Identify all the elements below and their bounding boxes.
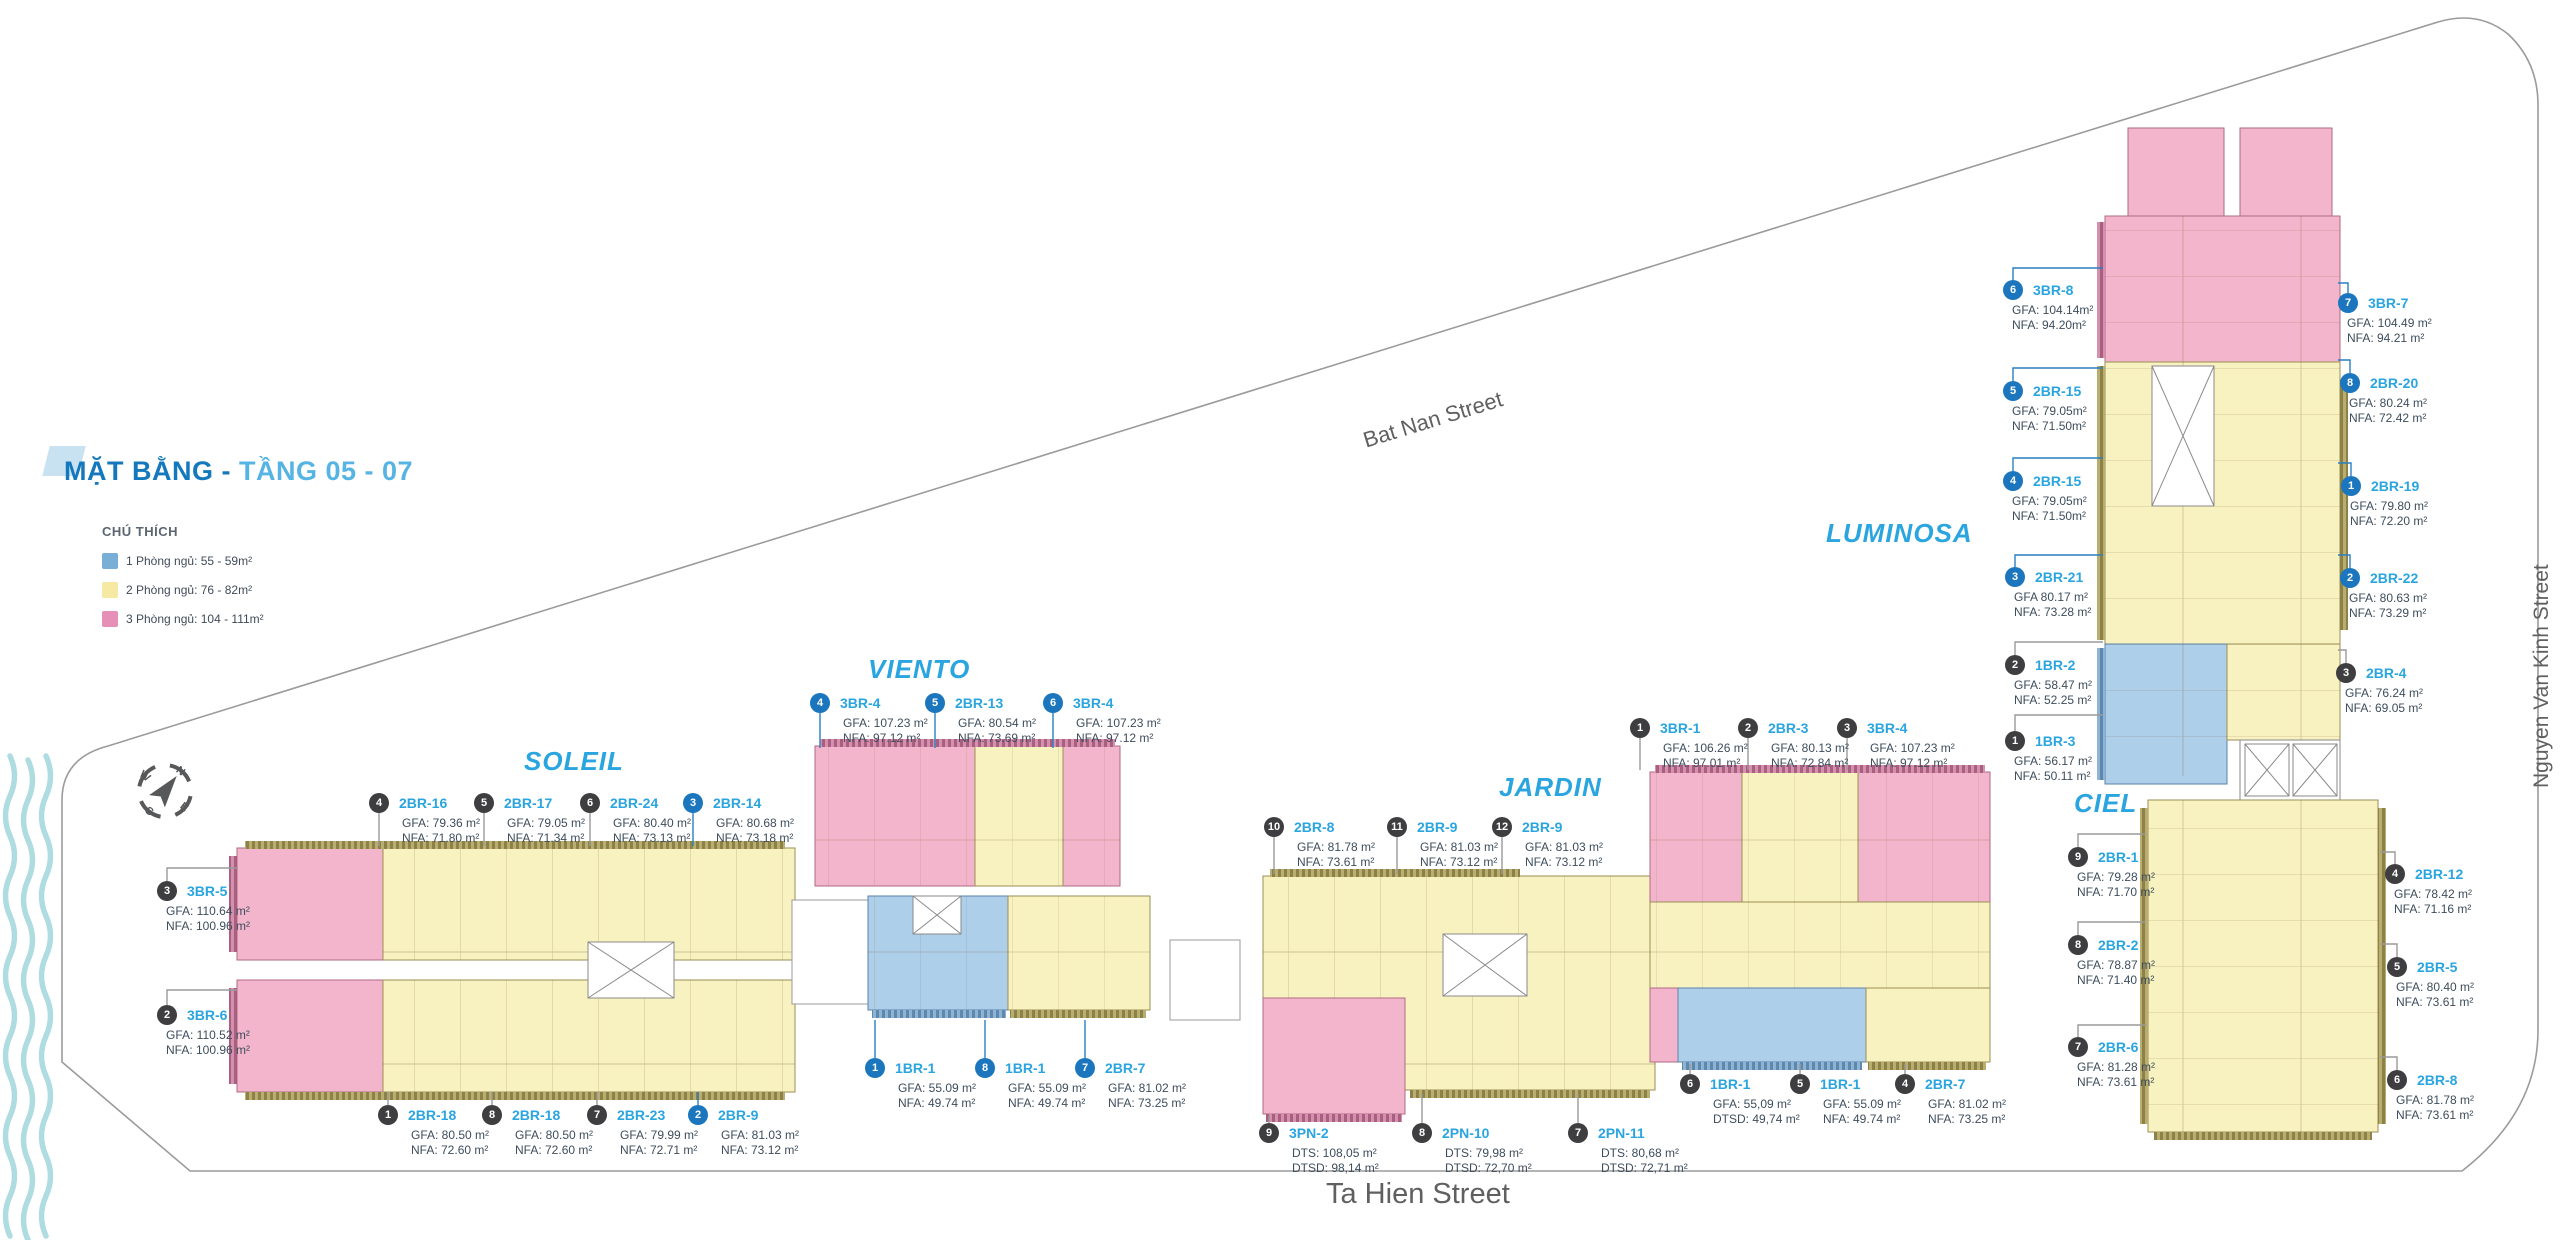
unit-area-line2: NFA: 73.61 m² [2396,995,2474,1010]
unit-number-badge: 1 [1630,718,1650,738]
unit-area-line2: NFA: 73.12 m² [1420,855,1498,870]
unit-callout-luminosa-1br-2[interactable]: 21BR-2GFA: 58.47 m²NFA: 52.25 m² [2005,655,2092,708]
unit-number-badge: 2 [157,1005,177,1025]
unit-callout-luminosa-3br-7[interactable]: 73BR-7GFA: 104.49 m²NFA: 94.21 m² [2338,293,2432,346]
unit-area-line1: GFA: 79.36 m² [402,816,480,831]
unit-callout-luminosa-2br-4[interactable]: 32BR-4GFA: 76.24 m²NFA: 69.05 m² [2336,663,2423,716]
balcony-strip [1266,1114,1402,1122]
legend-swatch-1br-icon [102,553,118,569]
unit-name: 3BR-5 [187,883,227,899]
unit-number-badge: 4 [2003,471,2023,491]
tower-title-ciel: CIEL [2074,788,2137,819]
unit-area-line1: GFA: 79.05m² [2012,404,2087,419]
unit-callout-soleil-2br-23[interactable]: 72BR-23GFA: 79.99 m²NFA: 72.71 m² [587,1105,698,1158]
unit-area-line2: NFA: 71.80 m² [402,831,480,846]
unit-name: 2BR-7 [1925,1076,1965,1092]
unit-name: 2BR-4 [2366,665,2406,681]
unit-callout-luminosa-2br-21[interactable]: 32BR-21GFA 80.17 m²NFA: 73.28 m² [2005,567,2091,620]
unit-callout-soleil-2br-18[interactable]: 12BR-18GFA: 80.50 m²NFA: 72.60 m² [378,1105,489,1158]
unit-number-badge: 6 [2003,280,2023,300]
tower-title-soleil: SOLEIL [524,746,624,777]
unit-callout-jardin-2br-9[interactable]: 122BR-9GFA: 81.03 m²NFA: 73.12 m² [1492,817,1603,870]
tower-title-jardin: JARDIN [1499,772,1602,803]
balcony-strip [1010,1010,1146,1018]
unit-area-line2: NFA: 73.18 m² [716,831,794,846]
unit-callout-ciel-2br-12[interactable]: 42BR-12GFA: 78.42 m²NFA: 71.16 m² [2385,864,2472,917]
callout-leader-line [2078,922,2146,935]
unit-number-badge: 8 [2340,373,2360,393]
unit-number-badge: 2 [688,1105,708,1125]
unit-number-badge: 9 [2068,847,2088,867]
unit-area-line1: GFA: 79.05m² [2012,494,2087,509]
viento-footprint [792,739,1150,1018]
legend: CHÚ THÍCH 1 Phòng ngủ: 55 - 59m² 2 Phòng… [102,524,264,640]
unit-area-line1: GFA: 80.40 m² [613,816,691,831]
unit-callout-jardin-2pn-11[interactable]: 72PN-11DTS: 80,68 m²DTSD: 72,71 m² [1568,1123,1688,1176]
unit-area-line1: GFA: 81.02 m² [1108,1081,1186,1096]
unit-name: 2PN-11 [1598,1125,1645,1141]
unit-name: 2PN-10 [1442,1125,1489,1141]
unit-callout-jardin-2br-9[interactable]: 112BR-9GFA: 81.03 m²NFA: 73.12 m² [1387,817,1498,870]
balcony-strip [1410,1090,1650,1098]
unit-name: 2BR-13 [955,695,1003,711]
unit-name: 2BR-9 [1522,819,1562,835]
unit-area-line2: NFA: 71.16 m² [2394,902,2472,917]
unit-name: 1BR-1 [895,1060,935,1076]
unit-area-line2: NFA: 72.42 m² [2349,411,2427,426]
unit-callout-jardin-1br-1[interactable]: 61BR-1GFA: 55,09 m²DTSD: 49,74 m² [1680,1074,1800,1127]
water-waves [6,756,51,1240]
unit-name: 3BR-6 [187,1007,227,1023]
unit-callout-soleil-2br-18[interactable]: 82BR-18GFA: 80.50 m²NFA: 72.60 m² [482,1105,593,1158]
unit-callout-soleil-3br-5[interactable]: 33BR-5GFA: 110.64 m²NFA: 100.96 m² [157,881,250,934]
unit-area-line2: NFA: 97.01 m² [1663,756,1748,771]
unit-area-line2: NFA: 73.25 m² [1108,1096,1186,1111]
unit-callout-viento-3br-4[interactable]: 63BR-4GFA: 107.23 m²NFA: 97.12 m² [1043,693,1161,746]
unit-area-line2: NFA: 72.60 m² [411,1143,489,1158]
unit-name: 2BR-20 [2370,375,2418,391]
unit-area-line2: NFA: 73.61 m² [1297,855,1375,870]
unit-area-line2: NFA: 97.12 m² [1870,756,1955,771]
unit-name: 3BR-8 [2033,282,2073,298]
unit-area-line1: GFA: 81.78 m² [2396,1093,2474,1108]
unit-name: 2BR-9 [718,1107,758,1123]
unit-area-line2: DTSD: 98,14 m² [1292,1161,1379,1176]
unit-number-badge: 7 [2338,293,2358,313]
unit-area-line1: GFA: 79.05 m² [507,816,585,831]
floor-plan-canvas: MẶT BẰNG - TẦNG 05 - 07 CHÚ THÍCH 1 Phòn… [0,0,2560,1240]
unit-name: 2BR-23 [617,1107,665,1123]
unit-callout-luminosa-2br-20[interactable]: 82BR-20GFA: 80.24 m²NFA: 72.42 m² [2340,373,2427,426]
unit-callout-jardin-1br-1[interactable]: 51BR-1GFA: 55.09 m²NFA: 49.74 m² [1790,1074,1901,1127]
unit-area-line1: GFA: 78.42 m² [2394,887,2472,902]
unit-name: 2BR-7 [1105,1060,1145,1076]
unit-area-line1: GFA: 107.23 m² [843,716,928,731]
unit-callout-soleil-2br-14[interactable]: 32BR-14GFA: 80.68 m²NFA: 73.18 m² [683,793,794,846]
unit-callout-ciel-2br-2[interactable]: 82BR-2GFA: 78.87 m²NFA: 71.40 m² [2068,935,2155,988]
unit-number-badge: 5 [1790,1074,1810,1094]
page-title-primary: MẶT BẰNG - [64,456,231,486]
unit-name: 2BR-8 [2417,1072,2457,1088]
unit-area-line2: DTSD: 72,70 m² [1445,1161,1532,1176]
unit-number-badge: 9 [1259,1123,1279,1143]
unit-number-badge: 6 [2387,1070,2407,1090]
unit-area-line2: NFA: 73.13 m² [613,831,691,846]
callout-leader-line [167,990,237,1005]
street-label-nguyen-van-kinh: Nguyen Van Kinh Street [2530,564,2554,788]
unit-number-badge: 11 [1387,817,1407,837]
legend-item-1br: 1 Phòng ngủ: 55 - 59m² [102,553,264,569]
unit-callout-viento-1br-1[interactable]: 11BR-1GFA: 55.09 m²NFA: 49.74 m² [865,1058,976,1111]
unit-number-badge: 8 [975,1058,995,1078]
unit-name: 2BR-17 [504,795,552,811]
unit-area-line2: NFA: 71.34 m² [507,831,585,846]
unit-area-line1: GFA: 80.63 m² [2349,591,2427,606]
unit-number-badge: 1 [2341,476,2361,496]
unit-callout-luminosa-2br-15[interactable]: 52BR-15GFA: 79.05m²NFA: 71.50m² [2003,381,2087,434]
elevator-core [2240,740,2340,800]
unit-area-line1: GFA: 80.50 m² [411,1128,489,1143]
balcony-strip [1682,1062,1862,1070]
unit-name: 2BR-1 [2098,849,2138,865]
unit-name: 2BR-19 [2371,478,2419,494]
unit-number-badge: 5 [2003,381,2023,401]
unit-area-line1: GFA: 81.02 m² [1928,1097,2006,1112]
unit-name: 2BR-21 [2035,569,2083,585]
unit-area-line2: NFA: 72.71 m² [620,1143,698,1158]
unit-name: 2BR-15 [2033,383,2081,399]
callout-leader-line [2013,458,2103,471]
unit-callout-ciel-2br-1[interactable]: 92BR-1GFA: 79.28 m²NFA: 71.70 m² [2068,847,2155,900]
unit-number-badge: 3 [2005,567,2025,587]
unit-number-badge: 7 [1075,1058,1095,1078]
unit-callout-soleil-2br-9[interactable]: 22BR-9GFA: 81.03 m²NFA: 73.12 m² [688,1105,799,1158]
unit-number-badge: 3 [2336,663,2356,683]
unit-area-line1: GFA: 55,09 m² [1713,1097,1800,1112]
unit-callout-viento-1br-1[interactable]: 81BR-1GFA: 55.09 m²NFA: 49.74 m² [975,1058,1086,1111]
unit-name: 3BR-4 [840,695,880,711]
unit-area-line1: GFA: 106.26 m² [1663,741,1748,756]
unit-number-badge: 3 [1837,718,1857,738]
unit-area-line1: GFA: 80.54 m² [958,716,1036,731]
luminosa-footprint [2097,128,2348,784]
unit-callout-soleil-2br-17[interactable]: 52BR-17GFA: 79.05 m²NFA: 71.34 m² [474,793,585,846]
legend-swatch-3br-icon [102,611,118,627]
unit-number-badge: 4 [2385,864,2405,884]
unit-area-line1: GFA: 110.52 m² [166,1028,250,1043]
balcony-strip [245,1092,785,1100]
unit-area-line1: GFA: 80.68 m² [716,816,794,831]
unit-callout-soleil-2br-24[interactable]: 62BR-24GFA: 80.40 m²NFA: 73.13 m² [580,793,691,846]
unit-area-line1: GFA: 110.64 m² [166,904,250,919]
balcony-strip [2154,1132,2372,1140]
legend-label: 2 Phòng ngủ: 76 - 82m² [126,583,252,597]
unit-area-line2: NFA: 97.12 m² [843,731,928,746]
unit-callout-soleil-3br-6[interactable]: 23BR-6GFA: 110.52 m²NFA: 100.96 m² [157,1005,250,1058]
unit-number-badge: 4 [369,793,389,813]
unit-area-line1: GFA: 104.49 m² [2347,316,2432,331]
unit-name: 1BR-1 [1820,1076,1860,1092]
unit-name: 2BR-5 [2417,959,2457,975]
unit-name: 2BR-18 [408,1107,456,1123]
unit-area-line2: NFA: 73.61 m² [2396,1108,2474,1123]
site-map [0,0,2560,1240]
unit-area-line2: NFA: 71.40 m² [2077,973,2155,988]
unit-number-badge: 12 [1492,817,1512,837]
legend-heading: CHÚ THÍCH [102,524,264,539]
unit-number-badge: 8 [1412,1123,1432,1143]
unit-area-line2: NFA: 49.74 m² [898,1096,976,1111]
unit-number-badge: 6 [1680,1074,1700,1094]
unit-area-line1: GFA: 79.28 m² [2077,870,2155,885]
unit-number-badge: 4 [1895,1074,1915,1094]
unit-name: 3BR-1 [1660,720,1700,736]
callout-leader-line [2013,368,2103,381]
elevator-core [588,942,674,998]
unit-name: 3BR-7 [2368,295,2408,311]
legend-item-3br: 3 Phòng ngủ: 104 - 111m² [102,611,264,627]
legend-label: 3 Phòng ngủ: 104 - 111m² [126,612,264,626]
unit-name: 2BR-24 [610,795,658,811]
callout-leader-line [2078,834,2146,847]
unit-number-badge: 5 [474,793,494,813]
unit-area-line1: DTS: 79,98 m² [1445,1146,1532,1161]
unit-callout-jardin-2pn-10[interactable]: 82PN-10DTS: 79,98 m²DTSD: 72,70 m² [1412,1123,1532,1176]
unit-callout-viento-2br-7[interactable]: 72BR-7GFA: 81.02 m²NFA: 73.25 m² [1075,1058,1186,1111]
unit-area-line2: NFA: 71.50m² [2012,419,2087,434]
unit-area-line2: NFA: 71.70 m² [2077,885,2155,900]
unit-callout-luminosa-2br-19[interactable]: 12BR-19GFA: 79.80 m²NFA: 72.20 m² [2341,476,2428,529]
unit-callout-ciel-2br-5[interactable]: 52BR-5GFA: 80.40 m²NFA: 73.61 m² [2387,957,2474,1010]
unit-number-badge: 2 [2340,568,2360,588]
unit-number-badge: 2 [2005,655,2025,675]
ciel-footprint [2140,800,2386,1140]
unit-number-badge: 3 [683,793,703,813]
unit-callout-viento-2br-13[interactable]: 52BR-13GFA: 80.54 m²NFA: 73.69 m² [925,693,1036,746]
unit-number-badge: 8 [2068,935,2088,955]
unit-area-line1: GFA 80.17 m² [2014,590,2091,605]
unit-area-line2: DTSD: 49,74 m² [1713,1112,1800,1127]
balcony-strip [2097,366,2105,640]
street-label-ta-hien: Ta Hien Street [1326,1178,1510,1211]
callout-leader-line [2015,642,2103,655]
callout-leader-line [167,868,237,881]
unit-callout-luminosa-2br-15[interactable]: 42BR-15GFA: 79.05m²NFA: 71.50m² [2003,471,2087,524]
unit-name: 2BR-22 [2370,570,2418,586]
tower-title-luminosa: LUMINOSA [1826,518,1973,549]
unit-area-line2: NFA: 73.61 m² [2077,1075,2155,1090]
unit-number-badge: 1 [2005,731,2025,751]
unit-area-line2: NFA: 94.21 m² [2347,331,2432,346]
balcony-strip [872,1010,1006,1018]
unit-callout-luminosa-2br-22[interactable]: 22BR-22GFA: 80.63 m²NFA: 73.29 m² [2340,568,2427,621]
unit-area-line2: NFA: 73.69 m² [958,731,1036,746]
unit-callout-luminosa-1br-3[interactable]: 11BR-3GFA: 56.17 m²NFA: 50.11 m² [2005,731,2092,784]
unit-name: 3PN-2 [1289,1125,1329,1141]
legend-label: 1 Phòng ngủ: 55 - 59m² [126,554,252,568]
unit-area-line1: GFA: 80.40 m² [2396,980,2474,995]
unit-area-line1: GFA: 81.28 m² [2077,1060,2155,1075]
unit-number-badge: 3 [157,881,177,901]
unit-callout-viento-3br-4[interactable]: 43BR-4GFA: 107.23 m²NFA: 97.12 m² [810,693,928,746]
soleil-footprint [229,841,795,1100]
water-wave [24,760,33,1240]
unit-area-line1: GFA: 55.09 m² [1823,1097,1901,1112]
unit-name: 1BR-1 [1005,1060,1045,1076]
balcony-strip [2097,222,2105,358]
unit-number-badge: 10 [1264,817,1284,837]
unit-callout-jardin-3pn-2[interactable]: 93PN-2DTS: 108,05 m²DTSD: 98,14 m² [1259,1123,1379,1176]
unit-callout-ciel-2br-6[interactable]: 72BR-6GFA: 81.28 m²NFA: 73.61 m² [2068,1037,2155,1090]
unit-area-line1: GFA: 79.80 m² [2350,499,2428,514]
unit-number-badge: 1 [378,1105,398,1125]
tower-title-viento: VIENTO [868,654,970,685]
callout-leader-line [2078,1025,2146,1037]
unit-area-line2: NFA: 72.20 m² [2350,514,2428,529]
balcony-strip [2097,648,2105,780]
elevator-core [2152,366,2214,506]
unit-name: 1BR-3 [2035,733,2075,749]
unit-area-line2: NFA: 100.96 m² [166,1043,250,1058]
unit-name: 2BR-18 [512,1107,560,1123]
unit-area-line2: NFA: 69.05 m² [2345,701,2423,716]
unit-name: 2BR-16 [399,795,447,811]
unit-area-line2: NFA: 72.60 m² [515,1143,593,1158]
unit-area-line2: NFA: 94.20m² [2012,318,2093,333]
unit-area-line2: NFA: 100.96 m² [166,919,250,934]
unit-number-badge: 1 [865,1058,885,1078]
unit-callout-jardin-2br-7[interactable]: 42BR-7GFA: 81.02 m²NFA: 73.25 m² [1895,1074,2006,1127]
unit-callout-jardin-2br-8[interactable]: 102BR-8GFA: 81.78 m²NFA: 73.61 m² [1264,817,1375,870]
unit-area-line2: NFA: 49.74 m² [1823,1112,1901,1127]
unit-area-line2: DTSD: 72,71 m² [1601,1161,1688,1176]
unit-number-badge: 8 [482,1105,502,1125]
unit-callout-jardin-3br-4[interactable]: 33BR-4GFA: 107.23 m²NFA: 97.12 m² [1837,718,1955,771]
unit-area-line1: DTS: 80,68 m² [1601,1146,1688,1161]
service-block [1170,940,1240,1020]
page-title: MẶT BẰNG - TẦNG 05 - 07 [64,456,413,487]
unit-number-badge: 7 [1568,1123,1588,1143]
legend-swatch-2br-icon [102,582,118,598]
unit-area-line2: NFA: 97.12 m² [1076,731,1161,746]
unit-area-line1: GFA: 55.09 m² [898,1081,976,1096]
unit-name: 2BR-12 [2415,866,2463,882]
balcony-strip [2378,808,2386,1124]
unit-name: 2BR-9 [1417,819,1457,835]
unit-area-line1: GFA: 81.78 m² [1297,840,1375,855]
elevator-core [1443,934,1527,996]
unit-area-line1: GFA: 80.24 m² [2349,396,2427,411]
balcony-strip [1868,1062,1986,1070]
unit-area-line2: NFA: 50.11 m² [2014,769,2092,784]
unit-name: 3BR-4 [1073,695,1113,711]
unit-area-line2: NFA: 71.50m² [2012,509,2087,524]
unit-name: 2BR-3 [1768,720,1808,736]
callout-leader-line [2015,715,2103,731]
unit-name: 2BR-14 [713,795,761,811]
elevator-core [913,896,961,934]
unit-area-line2: NFA: 73.12 m² [1525,855,1603,870]
unit-number-badge: 7 [2068,1037,2088,1057]
unit-area-line1: GFA: 107.23 m² [1870,741,1955,756]
unit-area-line1: GFA: 58.47 m² [2014,678,2092,693]
compass-icon: N E S W [134,760,196,822]
water-wave [6,756,15,1236]
unit-area-line2: NFA: 73.29 m² [2349,606,2427,621]
unit-number-badge: 5 [925,693,945,713]
unit-area-line1: GFA: 76.24 m² [2345,686,2423,701]
unit-area-line1: GFA: 80.50 m² [515,1128,593,1143]
unit-area-line1: GFA: 107.23 m² [1076,716,1161,731]
unit-number-badge: 5 [2387,957,2407,977]
unit-area-line2: NFA: 73.12 m² [721,1143,799,1158]
legend-item-2br: 2 Phòng ngủ: 76 - 82m² [102,582,264,598]
callout-leader-line [2013,268,2103,280]
unit-name: 1BR-1 [1710,1076,1750,1092]
unit-area-line1: DTS: 108,05 m² [1292,1146,1379,1161]
unit-name: 2BR-8 [1294,819,1334,835]
unit-callout-jardin-3br-1[interactable]: 13BR-1GFA: 106.26 m²NFA: 97.01 m² [1630,718,1748,771]
unit-area-line1: GFA: 81.03 m² [1420,840,1498,855]
unit-number-badge: 2 [1738,718,1758,738]
unit-callout-jardin-2br-3[interactable]: 22BR-3GFA: 80.13 m²NFA: 72.84 m² [1738,718,1849,771]
unit-area-line2: NFA: 52.25 m² [2014,693,2092,708]
unit-callout-soleil-2br-16[interactable]: 42BR-16GFA: 79.36 m²NFA: 71.80 m² [369,793,480,846]
unit-area-line2: NFA: 73.25 m² [1928,1112,2006,1127]
unit-callout-luminosa-3br-8[interactable]: 63BR-8GFA: 104.14m²NFA: 94.20m² [2003,280,2093,333]
water-wave [42,756,51,1236]
balcony-strip [1270,869,1520,877]
unit-callout-ciel-2br-8[interactable]: 62BR-8GFA: 81.78 m²NFA: 73.61 m² [2387,1070,2474,1123]
unit-number-badge: 6 [580,793,600,813]
unit-area-line1: GFA: 104.14m² [2012,303,2093,318]
unit-name: 2BR-15 [2033,473,2081,489]
unit-area-line1: GFA: 81.03 m² [721,1128,799,1143]
unit-number-badge: 4 [810,693,830,713]
callout-leader-line [2015,555,2103,567]
unit-area-line1: GFA: 56.17 m² [2014,754,2092,769]
unit-area-line1: GFA: 81.03 m² [1525,840,1603,855]
unit-name: 3BR-4 [1867,720,1907,736]
unit-area-line1: GFA: 78.87 m² [2077,958,2155,973]
unit-name: 2BR-6 [2098,1039,2138,1055]
unit-number-badge: 7 [587,1105,607,1125]
unit-number-badge: 6 [1043,693,1063,713]
unit-area-line2: NFA: 73.28 m² [2014,605,2091,620]
unit-name: 1BR-2 [2035,657,2075,673]
page-title-secondary: TẦNG 05 - 07 [239,456,413,486]
unit-name: 2BR-2 [2098,937,2138,953]
unit-area-line1: GFA: 79.99 m² [620,1128,698,1143]
